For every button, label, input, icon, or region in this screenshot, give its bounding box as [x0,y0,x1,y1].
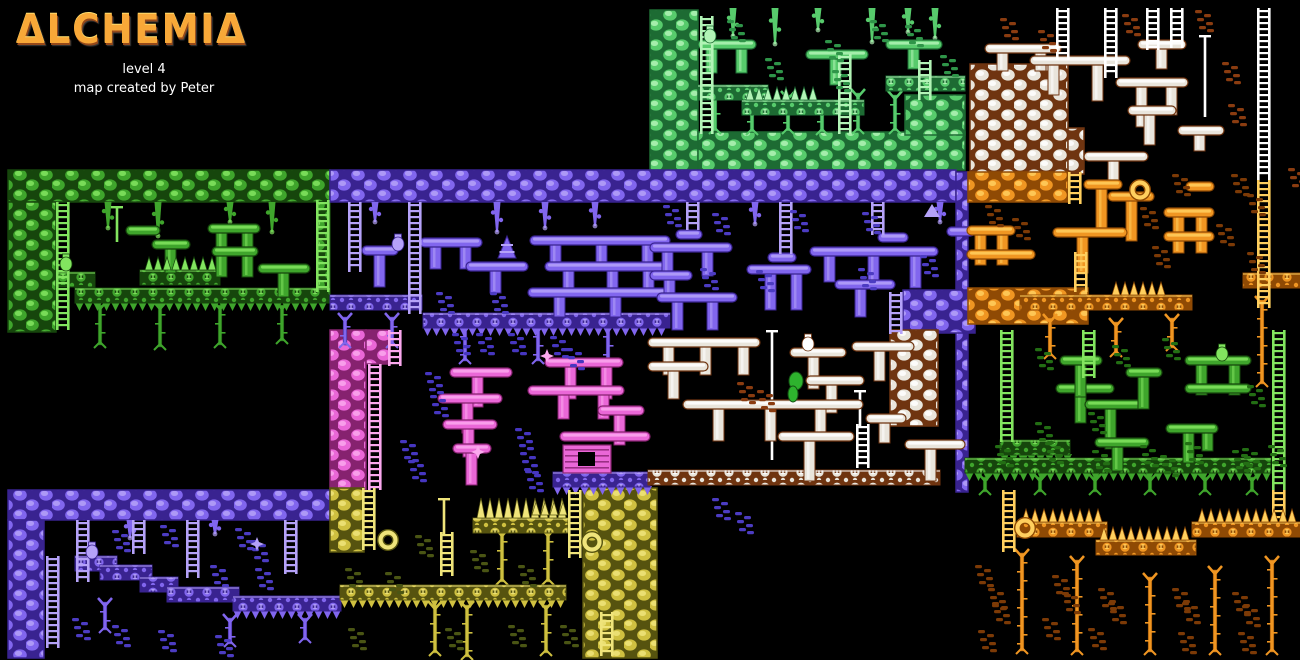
cobblestone-wall [8,202,56,332]
cobblestone-wall [330,330,366,490]
tree-trunk [1208,566,1222,655]
foliage [255,568,274,590]
foliage [765,58,784,80]
ladder [686,202,700,230]
foliage [518,565,537,587]
ladder [348,202,362,272]
skull-platform [423,313,670,336]
foliage [515,428,534,450]
mushroom-platform [1185,384,1251,393]
ladder [368,364,382,490]
skull-platform [167,587,239,602]
spikes [1112,282,1165,295]
ladder [1170,8,1184,48]
foliage [1238,632,1257,654]
hanging-vine [491,202,503,234]
skull-platform [1020,295,1192,310]
cobblestone-wall [650,10,698,170]
foliage [508,625,527,647]
cobblestone-wall [8,170,330,202]
level-label: level 4 [16,60,272,80]
ladder [1257,8,1271,180]
hanging-vine [539,202,551,230]
skull-platform [553,472,652,495]
mushroom-platform [1164,232,1214,241]
ladder [1002,490,1016,552]
pole [438,498,450,534]
mushroom-platform [362,246,398,287]
ladder [388,330,402,366]
ring-item [381,533,396,548]
skull-platform [1192,522,1300,537]
tree-trunk [1109,318,1123,357]
ladder [1000,330,1014,442]
hanging-vine [266,202,278,234]
foliage [112,530,131,552]
tree-trunk [888,91,902,134]
foliage [490,292,509,314]
hanging-vine [769,8,781,46]
hanging-vine [929,8,941,40]
mushroom-platform [1138,40,1186,69]
cobblestone-wall [905,95,965,135]
tree-trunk [1165,314,1179,351]
foliage [160,525,179,547]
tree-trunk [1255,296,1269,387]
tree-trunk [541,528,555,585]
ladder [918,60,932,100]
mushroom-platform [648,362,708,399]
foliage [72,618,91,640]
mushroom-platform [1084,180,1122,229]
ladder [440,532,454,576]
ladder [568,490,582,558]
ladder [889,292,903,334]
spikes [1100,527,1189,540]
tree-trunk [98,598,112,633]
mushroom-platform [866,414,906,443]
foliage [975,565,994,587]
foliage [1000,18,1019,40]
foliage [1108,602,1127,624]
tree-trunk [495,528,509,585]
foliage [1216,224,1235,246]
foliage [920,255,939,277]
pot-item [802,334,814,351]
mushroom-platform [1186,182,1214,191]
cobblestone-wall [330,488,364,552]
pole [111,206,123,242]
skull-platform [648,470,940,485]
skull-platform [473,518,568,533]
foliage [476,333,495,355]
ladder [1104,8,1118,78]
ladder [779,202,793,254]
foliage [235,528,254,550]
tree-trunk [539,601,553,656]
foliage [735,512,754,534]
mushroom-platform [1164,208,1214,253]
foliage [550,336,569,358]
game-logo: ΔLCHEMIΔ [16,8,272,52]
ladder [838,54,852,134]
foliage [1242,605,1261,627]
foliage [1152,246,1171,268]
mushroom-platform [1178,126,1224,151]
hanging-vine [749,202,761,226]
foliage [1042,618,1061,640]
map-canvas: ΔLCHEMIΔ level 4 map created by Peter [0,0,1300,660]
cobblestone-wall [583,488,657,658]
skull-platform [233,596,341,619]
cobblestone-wall [1068,128,1084,174]
foliage [508,333,527,355]
spikes [1022,509,1102,522]
mushroom-platform [768,253,796,262]
rings [381,183,1148,550]
tree-trunk [1143,573,1157,655]
foliage [663,205,682,227]
foliage [400,440,419,462]
brick-doorway [563,445,611,473]
skull-platform [140,270,220,285]
tree-trunk [298,614,312,643]
foliage [1172,588,1191,610]
foliage [1088,628,1107,650]
foliage [790,210,809,232]
tree-trunk [93,301,107,348]
credit-label: map created by Peter [16,79,272,99]
foliage [978,630,997,652]
mushroom-platform [466,262,528,293]
ladder [1056,8,1070,60]
beehive-cone [498,236,516,258]
ladder [46,556,60,648]
foliage [1088,412,1107,434]
ladder [362,488,376,550]
mushroom-platform [453,444,491,485]
pot-item [392,234,404,251]
foliage [560,625,579,647]
hanging-vine [369,202,381,224]
foliage [1178,632,1197,654]
skull-platform [1096,540,1196,555]
skull-platform [886,76,965,91]
foliage [1232,592,1251,614]
foliage [210,565,229,587]
mushroom-platform [1053,228,1127,273]
foliage [1140,207,1159,229]
spikes [145,257,216,270]
green-plant [788,372,803,402]
pot-item [60,254,72,271]
title-block: ΔLCHEMIΔ level 4 map created by Peter [16,10,272,99]
foliage [1182,602,1201,624]
foliage [712,498,731,520]
tree-trunk [460,601,474,660]
ladder [1082,330,1096,378]
tree-trunk [428,601,442,656]
ladder [186,520,200,578]
foliage [1228,104,1247,126]
mushroom-platform [676,230,702,239]
foliage [940,55,959,77]
cobblestone-wall [8,520,44,658]
mushroom-platform [126,226,160,235]
foliage [445,628,464,650]
tree-trunk [1015,549,1029,654]
foliage [1222,62,1241,84]
cobblestone-wall [968,172,1068,202]
hanging-vine [224,202,236,224]
hanging-vine [902,8,914,34]
tree-trunk [1265,556,1279,655]
foliage [112,625,131,647]
ladder [1068,172,1082,204]
foliage [158,630,177,652]
pot-item [1216,344,1228,361]
foliage [985,205,1004,227]
mushroom-platform [212,247,258,256]
foliage [1098,588,1117,610]
ring-item [1133,183,1148,198]
hanging-vine [209,520,221,536]
foliage [348,628,367,650]
mushroom-platform [560,432,650,441]
foliage [470,550,489,572]
cobblestone-wall [8,490,330,520]
level-map [0,0,1300,660]
foliage [408,460,427,482]
foliage [436,292,455,314]
foliage [1231,174,1250,196]
mushroom-platform [967,250,1035,259]
foliage [1122,14,1141,36]
pole [1199,35,1211,117]
foliage [1195,10,1214,32]
mushroom-platform [886,40,942,69]
mushroom-platform [1166,424,1218,463]
mushroom-platform [1128,106,1176,145]
cobblestone-wall [330,170,956,202]
hanging-vine [589,202,601,228]
foliage [425,372,444,394]
skull-platform [1243,273,1300,288]
skull-platform [57,272,95,287]
hanging-vine [812,8,824,32]
skull-platform [742,100,864,115]
ladder [132,520,146,554]
ladder [856,424,870,468]
cobblestone-wall [903,290,975,333]
foliage [415,535,434,557]
pot-item [704,26,716,43]
foliage [712,213,731,235]
ladder [284,520,298,574]
foliage [1288,168,1300,190]
skull-platform [340,585,566,608]
skull-platform [75,288,330,311]
cobblestone-wall [698,132,965,170]
